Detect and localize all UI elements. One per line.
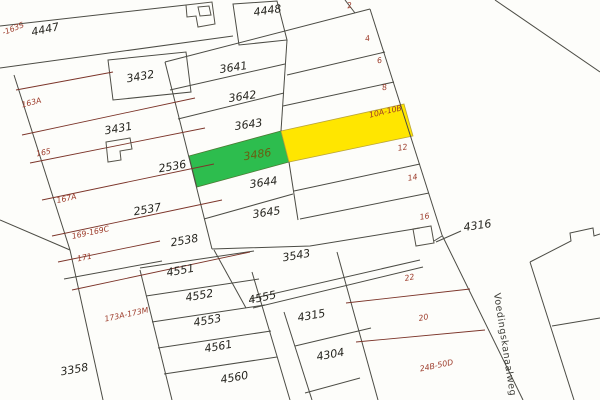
- address-label-2: 2: [346, 1, 352, 11]
- parcel-label-3645: 3645: [252, 204, 282, 221]
- address-label-6: 6: [376, 56, 382, 66]
- parcel-label-2538: 2538: [169, 232, 199, 250]
- parcel-label-4315: 4315: [296, 307, 326, 325]
- address-label-165: 165: [35, 147, 51, 159]
- parcel-label-4553: 4553: [192, 312, 222, 330]
- parcel-label-4448: 4448: [253, 2, 283, 19]
- address-label-20: 20: [418, 312, 430, 323]
- address-label-12: 12: [397, 142, 408, 153]
- parcel-label-2536: 2536: [157, 158, 187, 176]
- address-label-171: 171: [76, 252, 92, 264]
- parcel-label-4560: 4560: [219, 369, 249, 387]
- address-label-163A: 163A: [20, 96, 42, 110]
- address-label-173A-173M: 173A-173M: [104, 305, 150, 323]
- parcel-label-3543: 3543: [281, 247, 311, 265]
- address-label-169-169C: 169-169C: [71, 224, 111, 241]
- address-label-8: 8: [381, 83, 387, 93]
- parcel-label-4447: 4447: [30, 20, 60, 39]
- cadastral-map-canvas[interactable]: 4447444834323431364136423643348636443645…: [0, 0, 600, 400]
- parcel-label-3644: 3644: [249, 174, 279, 191]
- parcel-label-4551: 4551: [165, 262, 195, 280]
- address-label-167A: 167A: [56, 192, 78, 205]
- address-label-24B-50D: 24B-50D: [419, 358, 454, 374]
- parcel-label-3358: 3358: [59, 361, 89, 379]
- cadastral-map[interactable]: 4447444834323431364136423643348636443645…: [0, 0, 600, 400]
- parcel-label-3432: 3432: [125, 68, 155, 86]
- address-label-16: 16: [419, 211, 430, 222]
- address-label-14: 14: [407, 172, 418, 183]
- parcel-label-3431: 3431: [103, 120, 133, 138]
- address-label--163S: -163S: [1, 20, 25, 37]
- parcel-label-3642: 3642: [228, 88, 258, 105]
- parcel-label-2537: 2537: [132, 201, 162, 219]
- map-labels: 4447444834323431364136423643348636443645…: [1, 1, 518, 397]
- parcel-label-4316: 4316: [463, 217, 493, 234]
- parcel-label-3643: 3643: [234, 116, 264, 133]
- street-name-label-Voedingskanaalweg: Voedingskanaalweg: [491, 292, 518, 397]
- address-label-22: 22: [404, 272, 416, 283]
- address-label-4: 4: [364, 34, 370, 44]
- parcel-label-4304: 4304: [315, 346, 345, 364]
- parcel-label-4555: 4555: [247, 288, 277, 307]
